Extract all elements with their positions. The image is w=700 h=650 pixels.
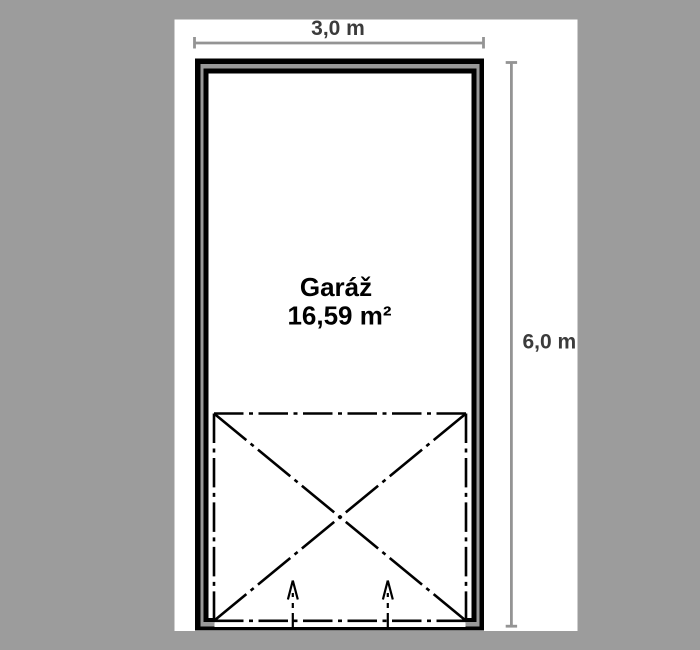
svg-text:Garáž: Garáž xyxy=(300,272,372,302)
svg-text:3,0 m: 3,0 m xyxy=(311,17,365,40)
svg-text:6,0 m: 6,0 m xyxy=(523,331,577,354)
svg-text:16,59 m²: 16,59 m² xyxy=(287,301,391,331)
